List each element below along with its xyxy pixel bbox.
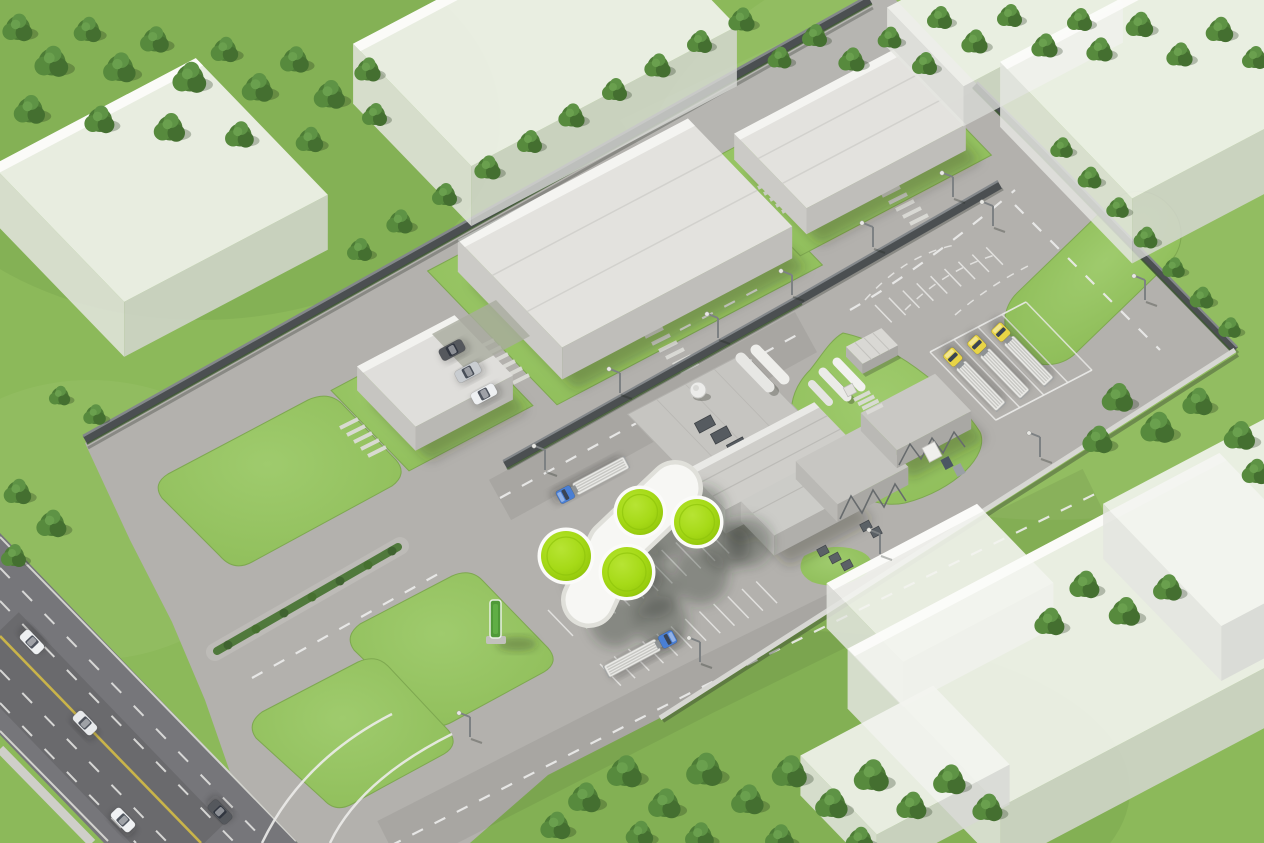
aerial-rendering: Aerial 3D rendering of a walled industri… bbox=[0, 0, 1264, 843]
canopy-disc bbox=[671, 496, 724, 549]
canopy-disc bbox=[599, 544, 656, 601]
scene-canvas bbox=[0, 0, 1264, 843]
canopy-disc bbox=[614, 486, 667, 539]
canopy-disc bbox=[538, 528, 595, 585]
